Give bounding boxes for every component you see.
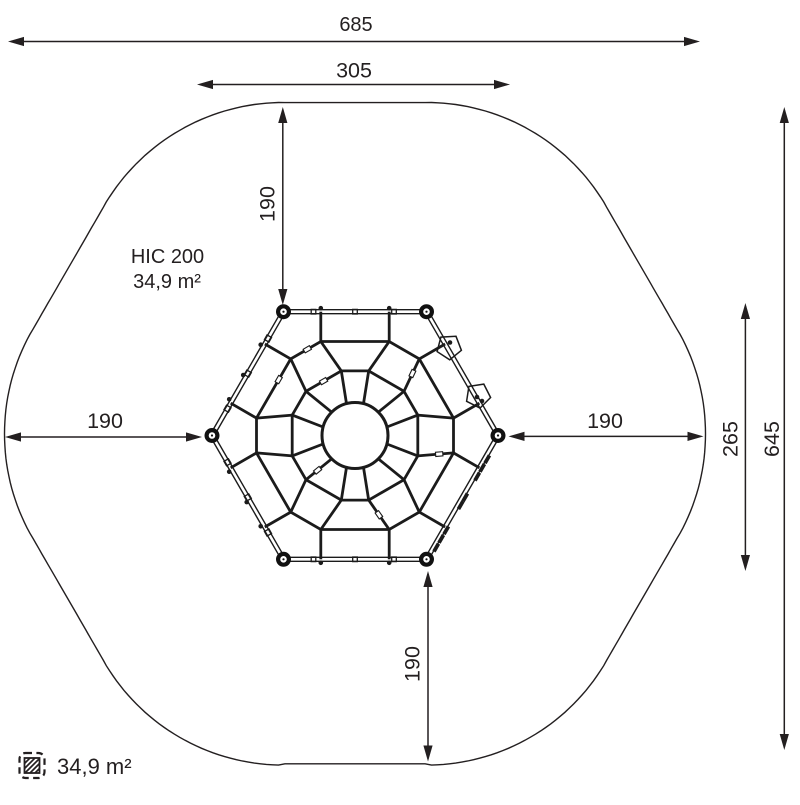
svg-text:265: 265 bbox=[719, 421, 743, 457]
svg-text:190: 190 bbox=[587, 409, 623, 433]
svg-text:34,9 m²: 34,9 m² bbox=[57, 754, 132, 779]
svg-text:685: 685 bbox=[339, 14, 372, 36]
svg-text:34,9 m²: 34,9 m² bbox=[133, 271, 201, 293]
svg-text:305: 305 bbox=[336, 59, 372, 83]
svg-text:190: 190 bbox=[256, 186, 280, 222]
svg-text:190: 190 bbox=[87, 409, 123, 433]
svg-text:190: 190 bbox=[401, 646, 425, 682]
svg-text:HIC 200: HIC 200 bbox=[131, 246, 204, 268]
svg-text:645: 645 bbox=[760, 421, 784, 457]
